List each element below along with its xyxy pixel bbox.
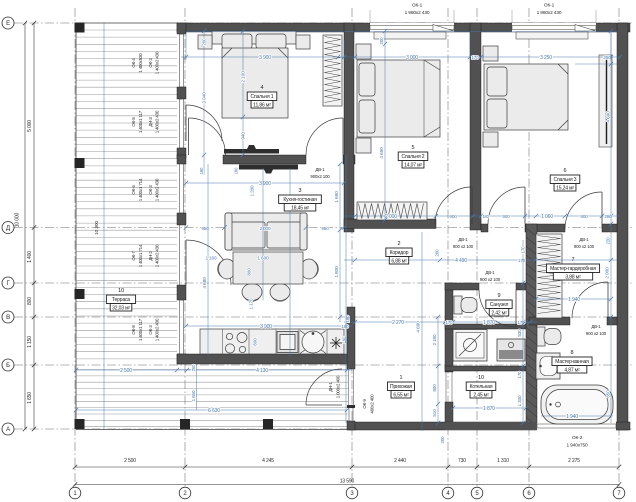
- svg-text:14,07 м²: 14,07 м²: [404, 162, 422, 168]
- svg-text:1 400х2 430: 1 400х2 430: [155, 110, 160, 133]
- svg-text:200: 200: [202, 38, 207, 46]
- svg-text:800: 800: [432, 384, 437, 392]
- svg-text:1 280: 1 280: [250, 185, 255, 196]
- svg-text:Д: Д: [6, 226, 10, 232]
- svg-text:8: 8: [571, 350, 574, 356]
- svg-text:Прихожая: Прихожая: [390, 384, 412, 390]
- svg-text:10: 10: [478, 375, 484, 381]
- svg-text:ОК-8: ОК-8: [131, 325, 136, 335]
- svg-text:180: 180: [199, 167, 204, 174]
- svg-text:Мастер-гардеробная: Мастер-гардеробная: [550, 266, 596, 272]
- svg-text:6: 6: [564, 168, 567, 174]
- svg-text:4 680: 4 680: [202, 277, 208, 289]
- svg-text:1 650: 1 650: [27, 392, 33, 404]
- svg-text:ДН-3: ДН-3: [148, 117, 153, 127]
- svg-text:250: 250: [603, 55, 611, 60]
- svg-text:1 940: 1 940: [568, 297, 580, 303]
- svg-text:ДВ-1: ДВ-1: [485, 270, 495, 275]
- svg-text:2 000: 2 000: [385, 214, 397, 220]
- svg-text:13 590: 13 590: [340, 479, 355, 485]
- svg-text:170: 170: [518, 258, 526, 263]
- svg-text:200: 200: [379, 37, 384, 45]
- svg-text:170: 170: [471, 55, 479, 60]
- svg-text:1 400х2 430: 1 400х2 430: [155, 318, 160, 341]
- svg-text:1 330: 1 330: [517, 395, 522, 406]
- svg-text:3 000: 3 000: [406, 55, 418, 61]
- svg-text:ДН-2: ДН-2: [148, 251, 153, 261]
- svg-text:2 275: 2 275: [568, 458, 580, 464]
- svg-text:1 600: 1 600: [257, 256, 269, 262]
- svg-text:Спальня 3: Спальня 3: [554, 177, 577, 183]
- svg-text:ОК-1: ОК-1: [544, 3, 555, 9]
- svg-text:2 500: 2 500: [124, 458, 136, 464]
- svg-text:1: 1: [400, 375, 403, 381]
- svg-text:10 300: 10 300: [94, 221, 100, 235]
- svg-text:1 400: 1 400: [27, 251, 33, 263]
- svg-text:180: 180: [234, 167, 239, 174]
- svg-text:9: 9: [498, 293, 501, 299]
- svg-text:1 400х2 430: 1 400х2 430: [155, 244, 160, 267]
- svg-text:Мастер-ванная: Мастер-ванная: [555, 359, 589, 365]
- svg-text:1 160: 1 160: [206, 256, 217, 261]
- svg-text:1 170: 1 170: [249, 298, 254, 309]
- svg-text:1 690: 1 690: [334, 191, 340, 203]
- svg-text:7: 7: [572, 257, 575, 263]
- svg-text:170: 170: [446, 320, 454, 325]
- svg-text:4 490: 4 490: [455, 258, 467, 264]
- svg-text:Е: Е: [6, 21, 10, 27]
- svg-text:1 870: 1 870: [483, 320, 495, 326]
- svg-text:510: 510: [432, 409, 437, 417]
- svg-text:1 400х2 430: 1 400х2 430: [155, 51, 160, 74]
- svg-text:900 х2 100: 900 х2 100: [574, 244, 595, 249]
- svg-text:800: 800: [27, 297, 33, 305]
- svg-text:3 900: 3 900: [259, 181, 271, 187]
- svg-text:1 310: 1 310: [497, 458, 509, 464]
- svg-text:2 270: 2 270: [392, 320, 404, 326]
- svg-text:ОК-3: ОК-3: [148, 58, 153, 68]
- svg-text:250: 250: [191, 364, 196, 371]
- svg-text:730: 730: [458, 458, 466, 464]
- svg-text:170: 170: [517, 371, 522, 379]
- svg-text:2 100: 2 100: [241, 71, 247, 83]
- svg-text:10: 10: [118, 288, 124, 294]
- svg-text:900: 900: [502, 214, 510, 219]
- svg-text:1 400х1 714: 1 400х1 714: [138, 178, 143, 201]
- svg-text:Котельная: Котельная: [470, 384, 493, 390]
- svg-text:940: 940: [241, 132, 246, 140]
- svg-text:11,86 м²: 11,86 м²: [253, 102, 271, 108]
- svg-text:2 180: 2 180: [432, 334, 437, 345]
- svg-text:3 250: 3 250: [540, 55, 552, 61]
- svg-text:180: 180: [342, 324, 350, 329]
- svg-text:400х2 400: 400х2 400: [370, 394, 375, 414]
- svg-text:1 400х1 117: 1 400х1 117: [138, 318, 143, 341]
- svg-text:900: 900: [580, 214, 588, 220]
- svg-text:1 060: 1 060: [541, 214, 553, 220]
- svg-text:5 000: 5 000: [27, 120, 33, 132]
- svg-text:2 440: 2 440: [394, 458, 406, 464]
- svg-text:1 800: 1 800: [334, 266, 340, 278]
- svg-text:4,87 м²: 4,87 м²: [564, 367, 580, 373]
- svg-text:900 х2 100: 900 х2 100: [480, 277, 501, 282]
- svg-text:600: 600: [253, 338, 258, 346]
- svg-text:ОК-5: ОК-5: [131, 117, 136, 127]
- svg-text:4 245: 4 245: [262, 458, 274, 464]
- svg-text:ДВ-1: ДВ-1: [315, 167, 325, 172]
- svg-text:ДВ-1: ДВ-1: [591, 324, 601, 329]
- svg-text:200: 200: [440, 436, 445, 444]
- svg-text:4: 4: [261, 85, 264, 91]
- svg-text:4 690: 4 690: [606, 111, 612, 123]
- svg-text:1 000х2 400: 1 000х2 400: [336, 375, 341, 398]
- svg-text:ДВ-1: ДВ-1: [579, 237, 589, 242]
- svg-text:2 000: 2 000: [260, 226, 271, 231]
- svg-text:170: 170: [518, 320, 526, 325]
- svg-text:6,55 м²: 6,55 м²: [393, 392, 409, 398]
- svg-text:Спальня 1: Спальня 1: [251, 94, 274, 100]
- svg-text:3: 3: [299, 188, 302, 194]
- svg-text:2 500: 2 500: [120, 368, 132, 374]
- svg-text:4 130: 4 130: [256, 368, 268, 374]
- svg-text:6,88 м²: 6,88 м²: [391, 258, 407, 264]
- svg-text:180: 180: [482, 214, 489, 219]
- svg-text:830: 830: [517, 329, 522, 337]
- svg-text:Кухня-гостиная: Кухня-гостиная: [283, 197, 317, 203]
- svg-text:6 630: 6 630: [208, 408, 220, 414]
- svg-text:1 940: 1 940: [566, 414, 578, 420]
- svg-text:1 960х2 430: 1 960х2 430: [537, 10, 562, 16]
- svg-text:1 650: 1 650: [191, 390, 196, 401]
- svg-text:1 400х1 714: 1 400х1 714: [138, 244, 143, 267]
- svg-text:10 000: 10 000: [15, 212, 21, 227]
- svg-text:1 870: 1 870: [483, 406, 495, 412]
- svg-text:Санузел: Санузел: [490, 302, 509, 308]
- svg-text:2,45 м²: 2,45 м²: [473, 392, 489, 398]
- svg-text:900: 900: [449, 214, 457, 220]
- svg-text:900 х2 100: 900 х2 100: [453, 244, 474, 249]
- svg-text:3,88 м²: 3,88 м²: [565, 274, 581, 280]
- svg-text:ДВ-1: ДВ-1: [458, 237, 468, 242]
- svg-text:ОК-1: ОК-1: [412, 3, 423, 9]
- svg-text:Б: Б: [6, 363, 10, 369]
- svg-text:Терраса: Терраса: [112, 297, 130, 303]
- svg-text:ОК-6: ОК-6: [131, 185, 136, 195]
- svg-text:900х2 100: 900х2 100: [310, 174, 330, 179]
- svg-text:ОК-4: ОК-4: [131, 58, 136, 68]
- svg-text:1 150: 1 150: [27, 336, 33, 348]
- svg-text:220: 220: [606, 237, 611, 245]
- svg-text:ОК-3: ОК-3: [148, 325, 153, 335]
- svg-text:800: 800: [247, 268, 252, 276]
- svg-text:15,24 м²: 15,24 м²: [556, 185, 574, 191]
- svg-text:В: В: [6, 315, 10, 321]
- svg-text:4 690: 4 690: [379, 147, 385, 159]
- svg-text:ОК-9: ОК-9: [362, 399, 367, 409]
- svg-text:200: 200: [435, 249, 440, 257]
- svg-text:Спальня 2: Спальня 2: [402, 154, 425, 160]
- svg-text:2,42 м²: 2,42 м²: [491, 310, 507, 316]
- svg-text:1 940х750: 1 940х750: [566, 443, 588, 449]
- svg-text:1 400х1 117: 1 400х1 117: [138, 110, 143, 133]
- svg-text:ОК-3: ОК-3: [148, 185, 153, 195]
- svg-text:ОК-2: ОК-2: [572, 435, 583, 441]
- svg-text:650: 650: [606, 390, 611, 398]
- svg-text:4 690: 4 690: [416, 321, 422, 333]
- svg-text:32,03 м²: 32,03 м²: [112, 305, 130, 311]
- svg-text:1 960х2 430: 1 960х2 430: [405, 10, 430, 16]
- svg-text:1 400х520: 1 400х520: [138, 53, 143, 73]
- svg-text:ОК-7: ОК-7: [131, 251, 136, 261]
- svg-text:А: А: [6, 427, 10, 433]
- svg-text:2: 2: [398, 241, 401, 247]
- svg-text:1 400х2 430: 1 400х2 430: [155, 178, 160, 201]
- svg-text:5: 5: [412, 145, 415, 151]
- svg-text:Коридор: Коридор: [390, 250, 409, 256]
- svg-text:170: 170: [521, 246, 526, 254]
- svg-text:900 х2 100: 900 х2 100: [586, 331, 607, 336]
- svg-text:18,45 м²: 18,45 м²: [291, 205, 309, 211]
- svg-text:3 900: 3 900: [259, 55, 271, 61]
- svg-text:ДН-1: ДН-1: [328, 382, 333, 392]
- svg-text:950: 950: [321, 226, 329, 231]
- svg-text:3 040: 3 040: [202, 92, 208, 104]
- svg-text:3 900: 3 900: [260, 324, 272, 330]
- svg-text:2 000: 2 000: [605, 267, 611, 279]
